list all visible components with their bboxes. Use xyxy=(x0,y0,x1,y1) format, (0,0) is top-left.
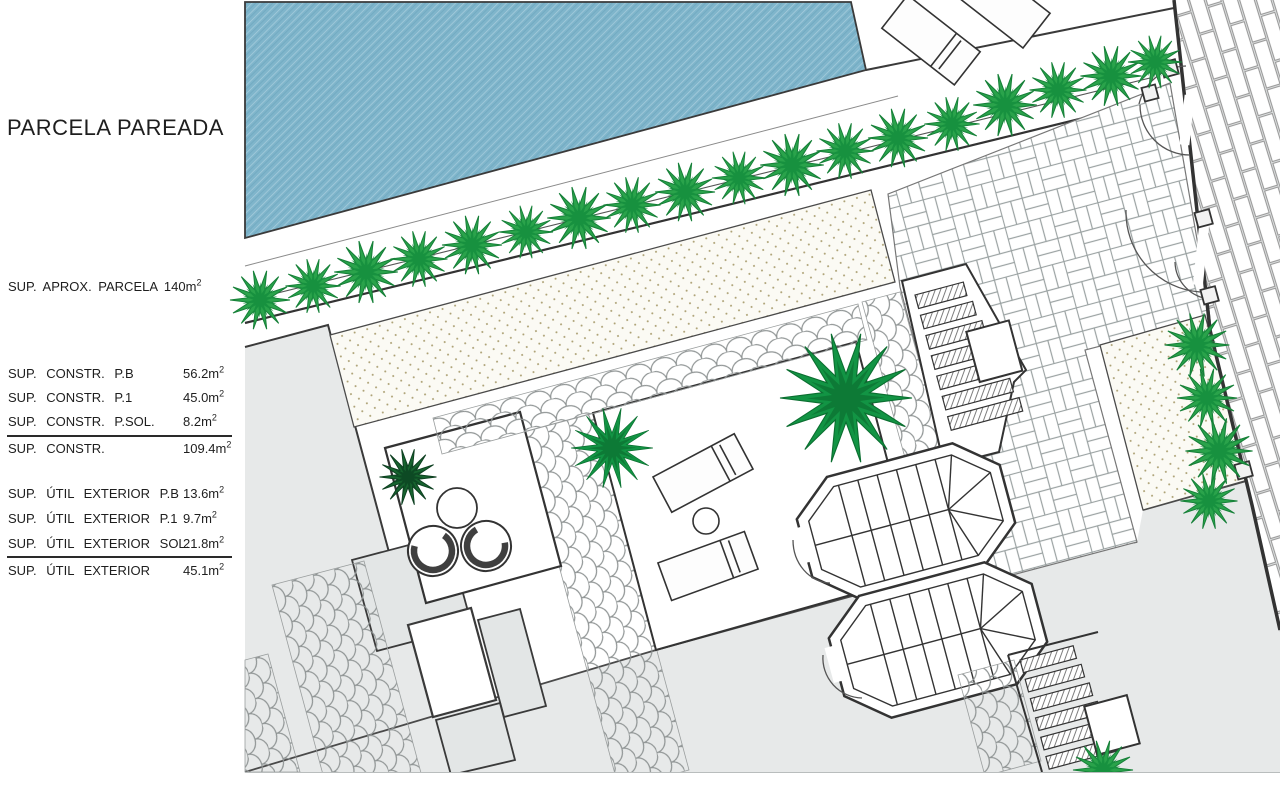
parcel-area-note: SUP. APROX. PARCELA 140m2 xyxy=(8,279,201,294)
row-label: SUP. CONSTR. P.SOL. xyxy=(8,414,155,429)
row-value: 8.2m2 xyxy=(183,414,217,429)
row-value: 56.2m2 xyxy=(183,366,224,381)
round-table-patio xyxy=(437,488,477,528)
legend-panel: PARCELA PAREADA SUP. APROX. PARCELA 140m… xyxy=(0,0,245,800)
round-table-terrace xyxy=(693,508,719,534)
row-value: 45.1m2 xyxy=(183,563,224,578)
table-rule xyxy=(7,556,232,558)
table-row: SUP. ÚTIL EXTERIOR P.1 9.7m2 xyxy=(8,511,177,526)
table-row: SUP. CONSTR. 109.4m2 xyxy=(8,441,105,456)
table-rule xyxy=(7,435,232,437)
row-label: SUP. CONSTR. P.B xyxy=(8,366,134,381)
table-row: SUP. ÚTIL EXTERIOR P.B 13.6m2 xyxy=(8,486,179,501)
table-row: SUP. CONSTR. P.1 45.0m2 xyxy=(8,390,132,405)
row-label: SUP. CONSTR. P.1 xyxy=(8,390,132,405)
site-plan-sheet: PARCELA PAREADA SUP. APROX. PARCELA 140m… xyxy=(0,0,1280,800)
row-value: 13.6m2 xyxy=(183,486,224,501)
row-label: SUP. ÚTIL EXTERIOR P.1 xyxy=(8,511,177,526)
page-title: PARCELA PAREADA xyxy=(7,115,224,141)
table-row: SUP. ÚTIL EXTERIOR SOL. 21.8m2 xyxy=(8,536,189,551)
table-row: SUP. CONSTR. P.B 56.2m2 xyxy=(8,366,134,381)
table-row: SUP. ÚTIL EXTERIOR 45.1m2 xyxy=(8,563,150,578)
table-row: SUP. CONSTR. P.SOL. 8.2m2 xyxy=(8,414,155,429)
row-value: 21.8m2 xyxy=(183,536,224,551)
row-label: SUP. ÚTIL EXTERIOR P.B xyxy=(8,486,179,501)
row-value: 45.0m2 xyxy=(183,390,224,405)
swimming-pool xyxy=(245,2,866,238)
row-label: SUP. ÚTIL EXTERIOR xyxy=(8,563,150,578)
row-label: SUP. ÚTIL EXTERIOR SOL. xyxy=(8,536,189,551)
row-label: SUP. CONSTR. xyxy=(8,441,105,456)
row-value: 109.4m2 xyxy=(183,441,231,456)
row-value: 9.7m2 xyxy=(183,511,217,526)
